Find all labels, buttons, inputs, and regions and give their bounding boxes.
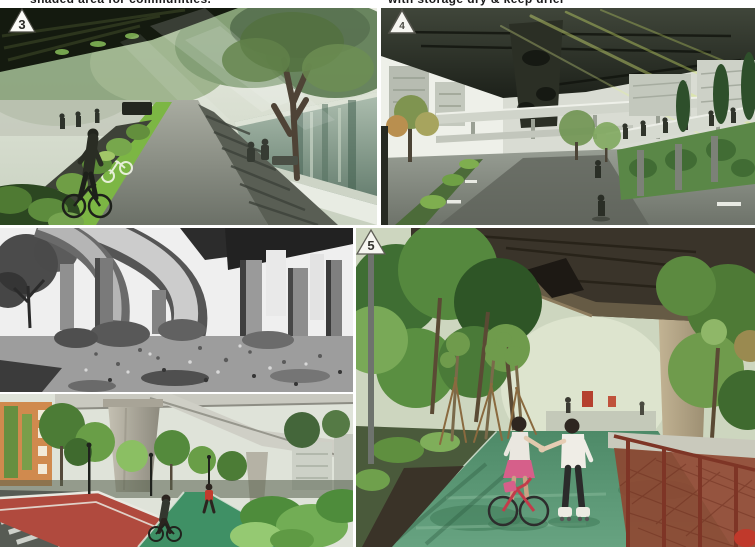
panel-render-street: 4 — [381, 8, 755, 225]
p5-lamp-post — [368, 248, 374, 464]
panel-render-canal-park: 3 — [0, 8, 377, 225]
marker-4-number: 4 — [399, 21, 405, 32]
caption-top-left: shaded area for communities. — [30, 0, 211, 7]
caption-top-right: with storage dry & keep drier — [388, 0, 565, 7]
caption-strip: shaded area for communities. with storag… — [0, 0, 755, 8]
panel-photo-paths-after — [0, 394, 353, 547]
p5-back-wall — [546, 411, 656, 433]
marker-5-number: 5 — [367, 238, 374, 253]
p5-fence — [608, 432, 755, 547]
collage-sheet: shaded area for communities. with storag… — [0, 0, 755, 547]
p2-pole — [381, 126, 388, 225]
marker-3-number: 3 — [18, 17, 25, 32]
panel-photo-green-path-kids: 5 — [356, 228, 755, 547]
panel-photo-before-bw — [0, 228, 353, 392]
